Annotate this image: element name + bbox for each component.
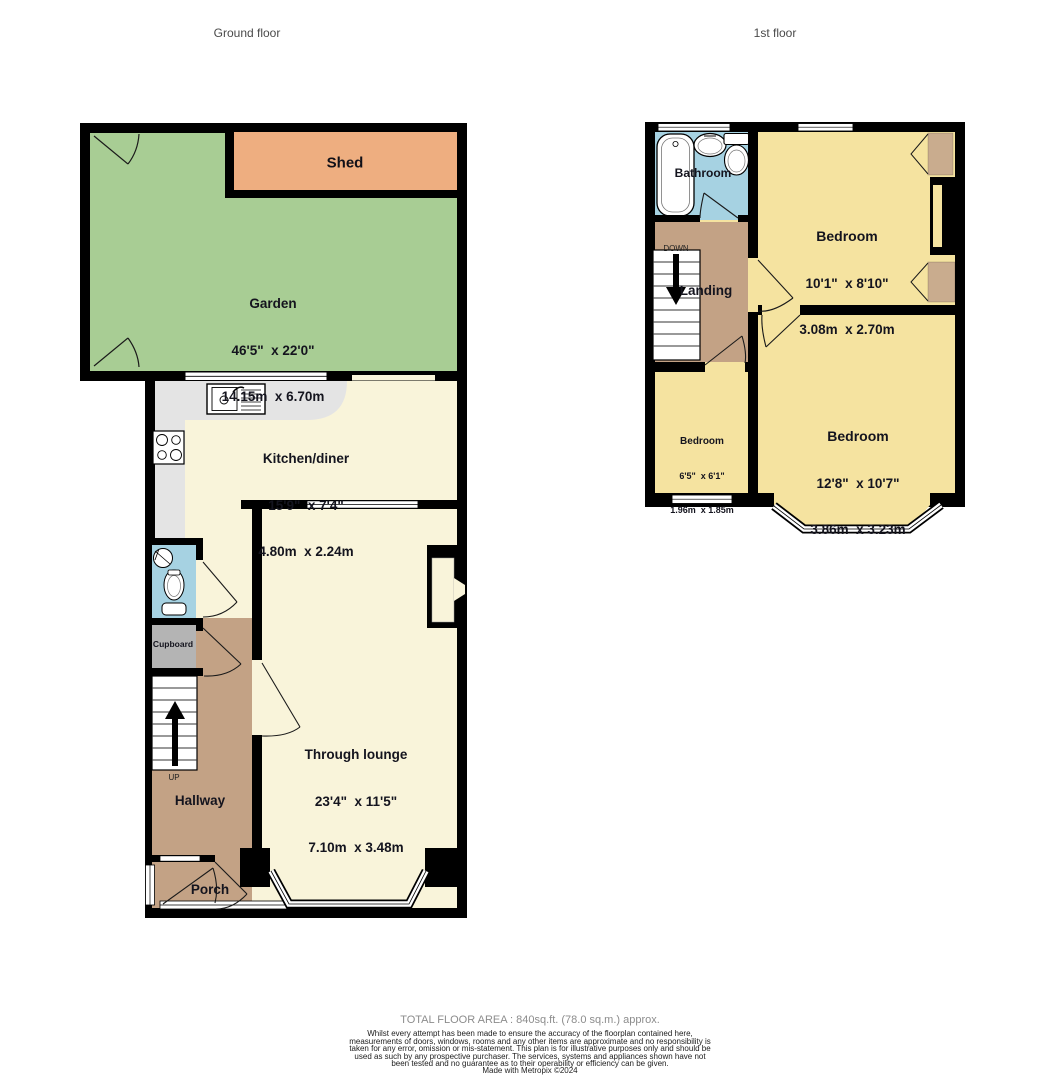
up-label: UP (168, 773, 179, 782)
floorplan-page: Ground floor 1st floor (0, 0, 1044, 1080)
bathroom-sink-icon (694, 134, 726, 157)
patio-opening (352, 374, 435, 381)
cupboard-label: Cupboard (153, 639, 193, 649)
wc-corner-sink-icon (154, 549, 173, 568)
wc-toilet-icon (162, 570, 186, 615)
bedroom1-label: Bedroom 10'1" x 8'10" 3.08m x 2.70m (799, 198, 894, 369)
porch-label: Porch (191, 882, 229, 897)
lounge-label: Through lounge 23'4" x 11'5" 7.10m x 3.4… (305, 716, 408, 887)
bedroom2-label: Bedroom 12'8" x 10'7" 3.86m x 3.23m (810, 398, 905, 569)
hallway-label: Hallway (175, 793, 225, 808)
bedroom-chimney (930, 177, 965, 255)
hob-icon (153, 431, 184, 464)
credit-text: Made with Metropix ©2024 (482, 1066, 577, 1075)
shed-label: Shed (327, 155, 364, 172)
ground-floor-title: Ground floor (214, 26, 281, 40)
first-floor-title: 1st floor (754, 26, 797, 40)
garden-label: Garden 46'5" x 22'0" 14.15m x 6.70m (222, 265, 325, 436)
bedroom3-label: Bedroom 6'5" x 6'1" 1.96m x 1.85m (670, 413, 734, 540)
staircase-up (152, 676, 197, 770)
kitchen-label: Kitchen/diner 15'9" x 7'4" 4.80m x 2.24m (258, 420, 353, 591)
down-label: DOWN (663, 244, 688, 253)
lounge-fireplace (427, 545, 467, 628)
disclaimer-text: Whilst every attempt has been made to en… (345, 1030, 715, 1068)
staircase-down (653, 250, 700, 360)
bathroom-label: Bathroom (675, 166, 732, 180)
total-floor-area: TOTAL FLOOR AREA : 840sq.ft. (78.0 sq.m.… (400, 1014, 660, 1026)
landing-label: Landing (680, 283, 733, 298)
